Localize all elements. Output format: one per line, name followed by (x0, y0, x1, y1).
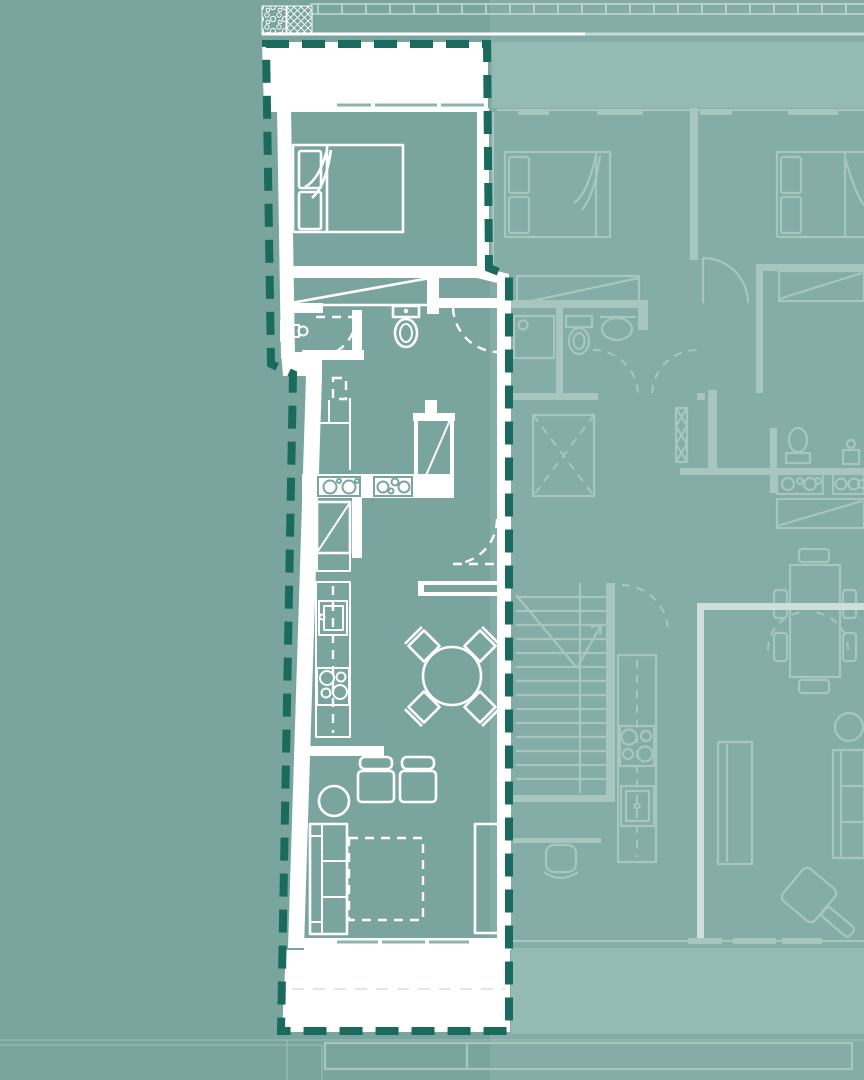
window-tick (782, 938, 822, 944)
window-tick (597, 110, 643, 115)
unit-terrace-bottom (282, 950, 510, 1032)
window-tick (688, 938, 722, 944)
window-tick (788, 110, 838, 115)
unit-terrace-top (262, 42, 488, 112)
crosshatch-area (287, 6, 312, 34)
window-tick (700, 110, 732, 115)
gravel-hatch (262, 6, 286, 34)
floor-plan-svg (0, 0, 864, 1080)
window-tick (733, 938, 776, 944)
window-tick (518, 110, 549, 115)
floor-plan-canvas (0, 0, 864, 1080)
neighbor-terrace-top (492, 42, 864, 108)
neighbor-terrace-bottom (511, 948, 864, 1034)
background (0, 0, 864, 1080)
